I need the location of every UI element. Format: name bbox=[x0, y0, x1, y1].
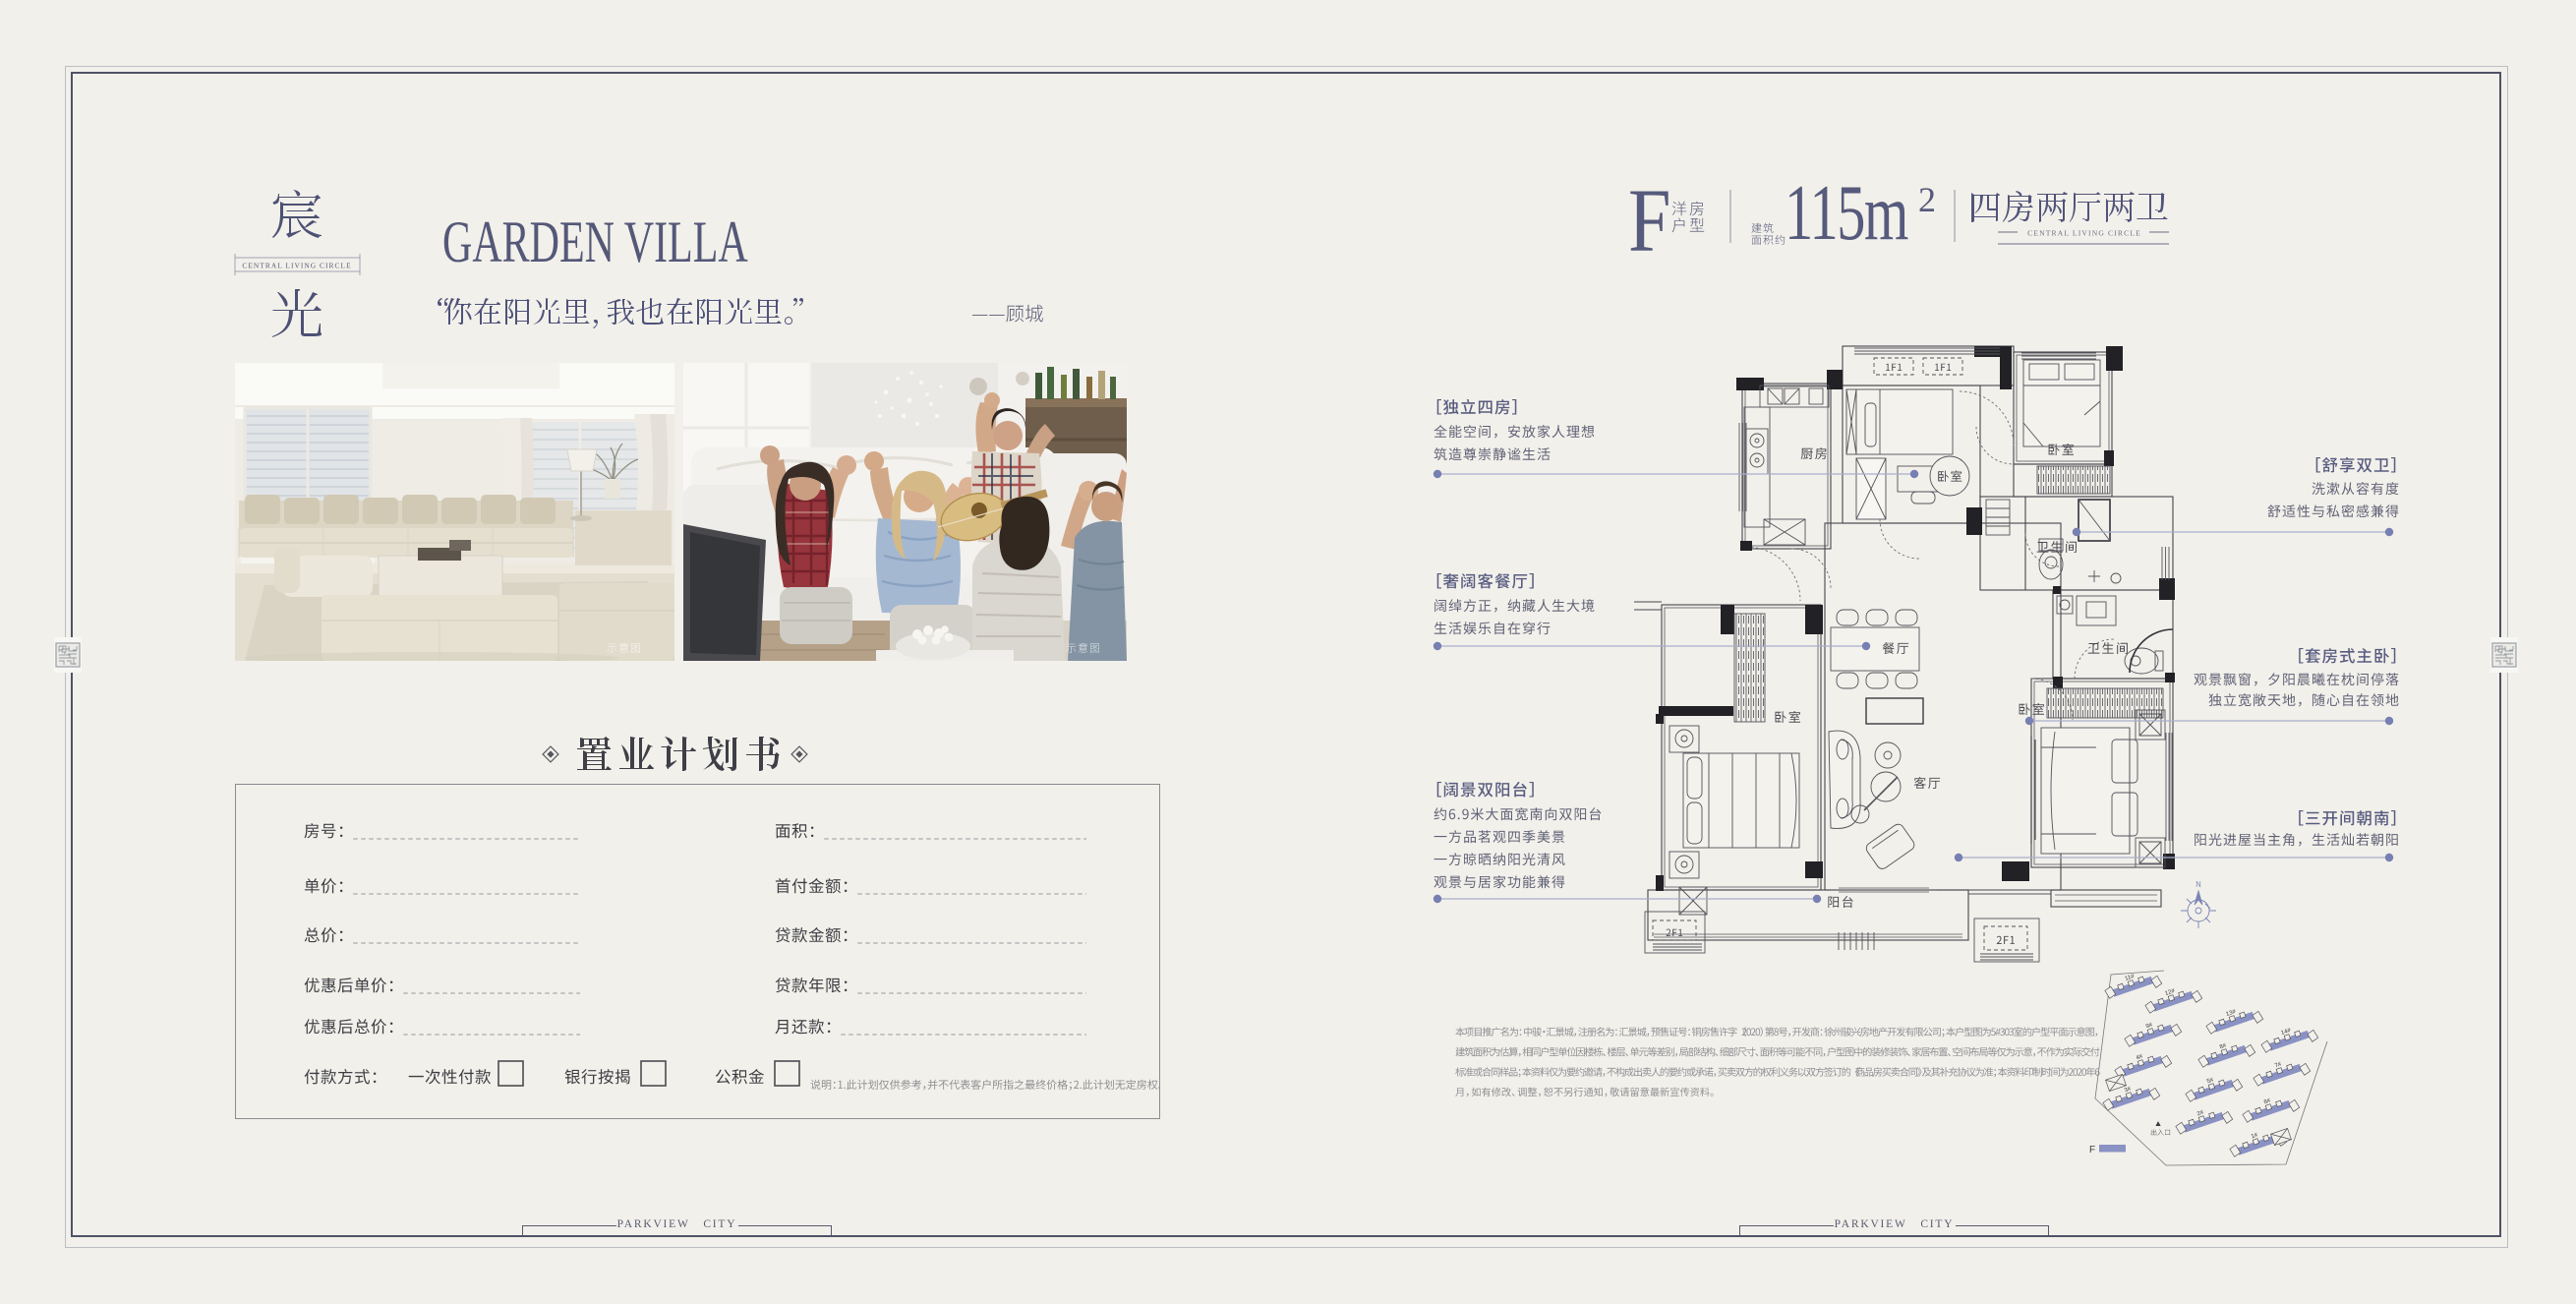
svg-text:CENTRAL LIVING CIRCLE: CENTRAL LIVING CIRCLE bbox=[2027, 229, 2141, 238]
svg-text:F: F bbox=[2089, 1145, 2095, 1156]
svg-text:11#: 11# bbox=[2125, 974, 2137, 982]
svg-text:CENTRAL LIVING CIRCLE: CENTRAL LIVING CIRCLE bbox=[242, 262, 351, 270]
